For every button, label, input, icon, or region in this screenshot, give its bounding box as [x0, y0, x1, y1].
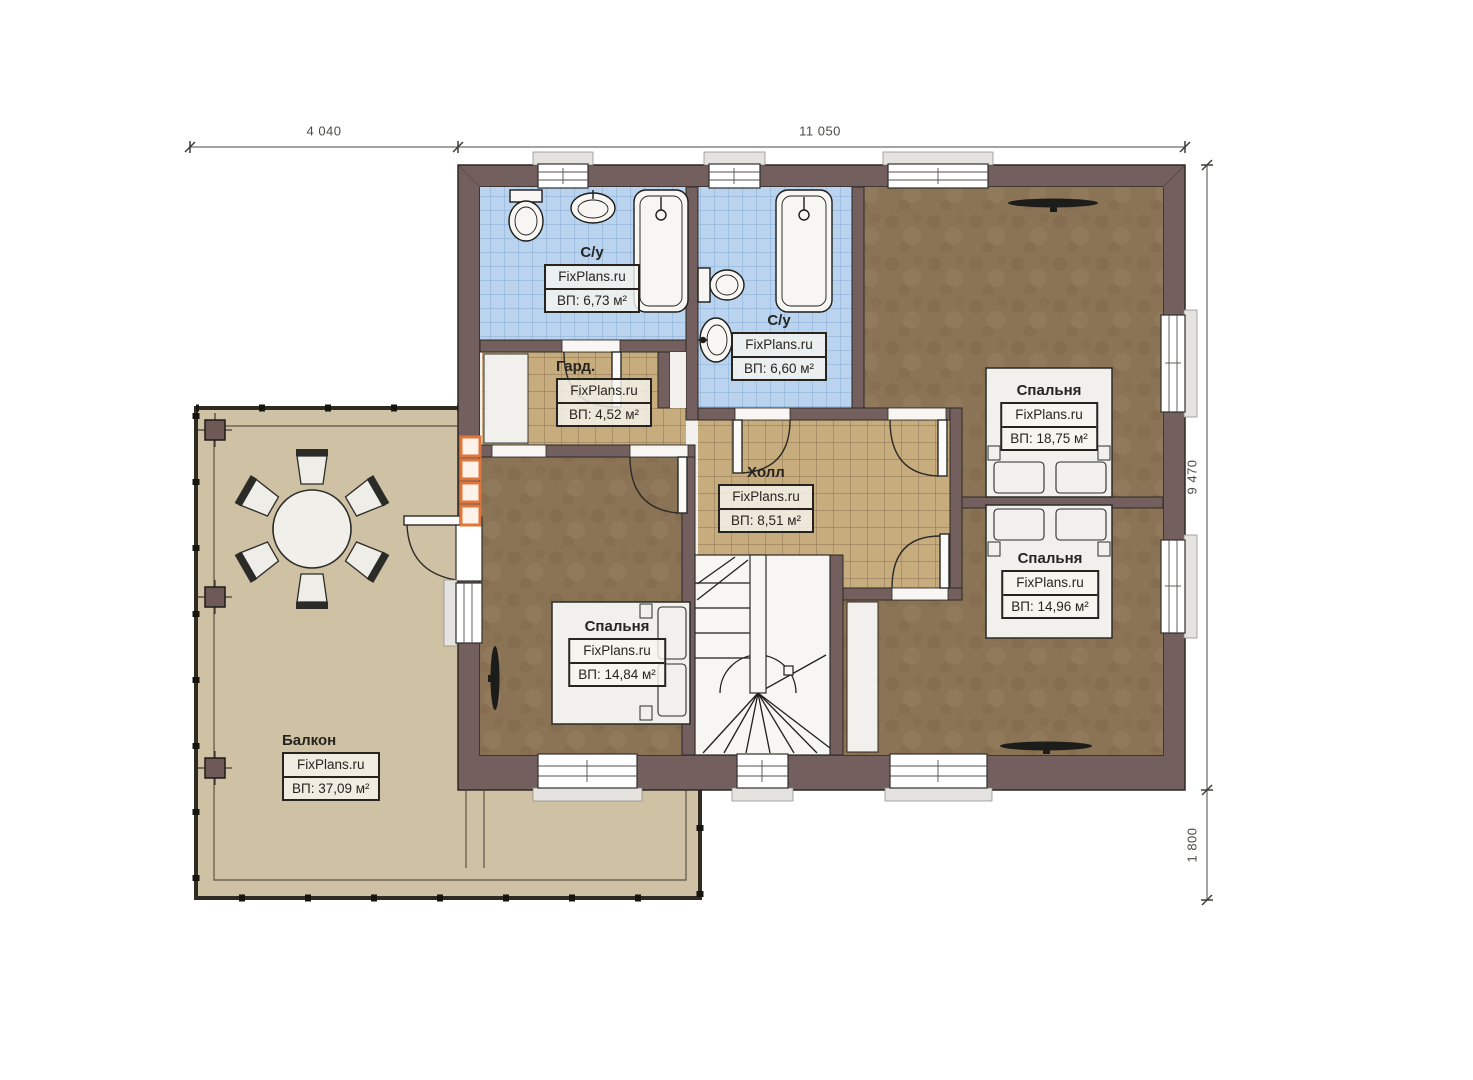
room-area: ВП: 18,75 м²: [1002, 426, 1096, 450]
dimension-label-right-upper: 9 470: [1185, 459, 1200, 494]
room-info-box: FixPlans.ru ВП: 18,75 м²: [1000, 402, 1098, 451]
room-name: С/у: [767, 312, 790, 329]
toilet: [698, 268, 744, 302]
brand-watermark: FixPlans.ru: [1002, 404, 1096, 426]
brand-watermark: FixPlans.ru: [1003, 572, 1097, 594]
room-label-bedroom-1: Спальня FixPlans.ru ВП: 18,75 м²: [1000, 382, 1098, 451]
brand-watermark: FixPlans.ru: [733, 334, 825, 356]
brand-watermark: FixPlans.ru: [284, 754, 378, 776]
floor-plan-drawing: [0, 0, 1473, 1080]
room-label-bathroom-1: С/у FixPlans.ru ВП: 6,73 м²: [544, 244, 640, 313]
room-info-box: FixPlans.ru ВП: 4,52 м²: [556, 378, 652, 427]
room-name: Гард.: [556, 358, 595, 375]
room-label-balcony: Балкон FixPlans.ru ВП: 37,09 м²: [282, 732, 380, 801]
floor-plan-page: 4 040 11 050 9 470 1 800 С/у FixPlans.ru…: [0, 0, 1473, 1080]
bathtub: [776, 190, 832, 312]
room-name: Холл: [747, 464, 785, 481]
dimension-label-right-lower: 1 800: [1185, 827, 1200, 862]
brand-watermark: FixPlans.ru: [720, 486, 812, 508]
wardrobe-shelf: [484, 354, 528, 443]
stairs: [695, 555, 830, 755]
room-name: Спальня: [1018, 550, 1083, 567]
room-area: ВП: 4,52 м²: [558, 402, 650, 426]
room-label-wardrobe: Гард. FixPlans.ru ВП: 4,52 м²: [556, 358, 652, 427]
room-area: ВП: 6,60 м²: [733, 356, 825, 380]
room-area: ВП: 8,51 м²: [720, 508, 812, 532]
room-info-box: FixPlans.ru ВП: 14,84 м²: [568, 638, 666, 687]
wall-niche: [670, 352, 686, 408]
room-name: Спальня: [585, 618, 650, 635]
room-label-hall: Холл FixPlans.ru ВП: 8,51 м²: [718, 464, 814, 533]
room-name: Спальня: [1017, 382, 1082, 399]
room-area: ВП: 14,96 м²: [1003, 594, 1097, 618]
room-area: ВП: 37,09 м²: [284, 776, 378, 800]
room-info-box: FixPlans.ru ВП: 6,73 м²: [544, 264, 640, 313]
brand-watermark: FixPlans.ru: [558, 380, 650, 402]
room-label-bathroom-2: С/у FixPlans.ru ВП: 6,60 м²: [731, 312, 827, 381]
brand-watermark: FixPlans.ru: [570, 640, 664, 662]
room-info-box: FixPlans.ru ВП: 8,51 м²: [718, 484, 814, 533]
room-name: С/у: [580, 244, 603, 261]
room-info-box: FixPlans.ru ВП: 6,60 м²: [731, 332, 827, 381]
bedroom-2-closet: [847, 602, 878, 752]
room-name: Балкон: [282, 732, 336, 749]
room-label-bedroom-2: Спальня FixPlans.ru ВП: 14,96 м²: [1001, 550, 1099, 619]
stair-divider: [750, 555, 766, 693]
room-info-box: FixPlans.ru ВП: 37,09 м²: [282, 752, 380, 801]
stair-newel-post: [784, 666, 793, 675]
room-area: ВП: 14,84 м²: [570, 662, 664, 686]
room-area: ВП: 6,73 м²: [546, 288, 638, 312]
toilet: [509, 190, 543, 241]
room-info-box: FixPlans.ru ВП: 14,96 м²: [1001, 570, 1099, 619]
brand-watermark: FixPlans.ru: [546, 266, 638, 288]
room-label-bedroom-3: Спальня FixPlans.ru ВП: 14,84 м²: [568, 618, 666, 687]
bathtub: [634, 190, 688, 312]
dimension-label-top-right: 11 050: [799, 124, 841, 139]
dimension-label-top-left: 4 040: [306, 124, 341, 139]
